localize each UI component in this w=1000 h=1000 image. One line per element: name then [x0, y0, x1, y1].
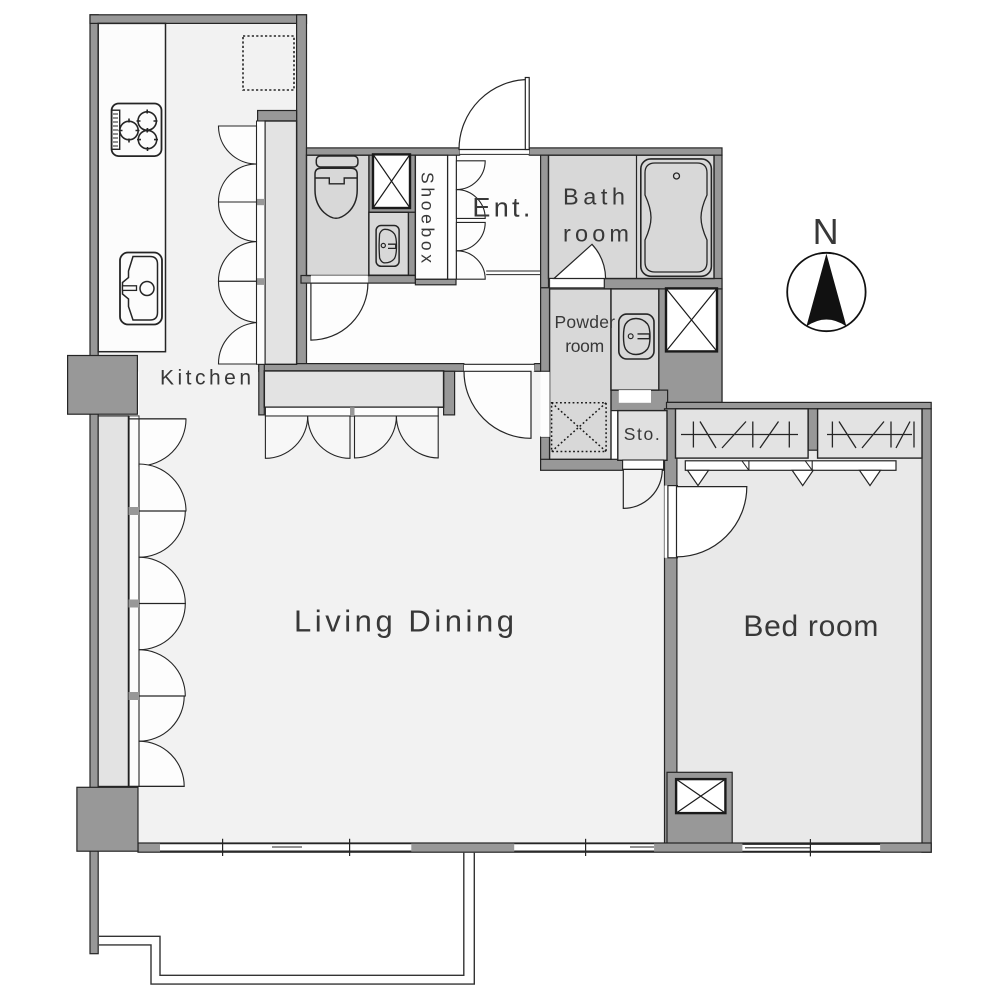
svg-text:N: N	[813, 211, 839, 252]
svg-text:Living Dining: Living Dining	[294, 604, 514, 639]
svg-text:Sto.: Sto.	[624, 424, 660, 444]
svg-text:Bath: Bath	[563, 184, 625, 210]
svg-text:room: room	[565, 336, 604, 356]
svg-text:Powder: Powder	[555, 312, 616, 332]
svg-text:Bed room: Bed room	[743, 610, 878, 643]
